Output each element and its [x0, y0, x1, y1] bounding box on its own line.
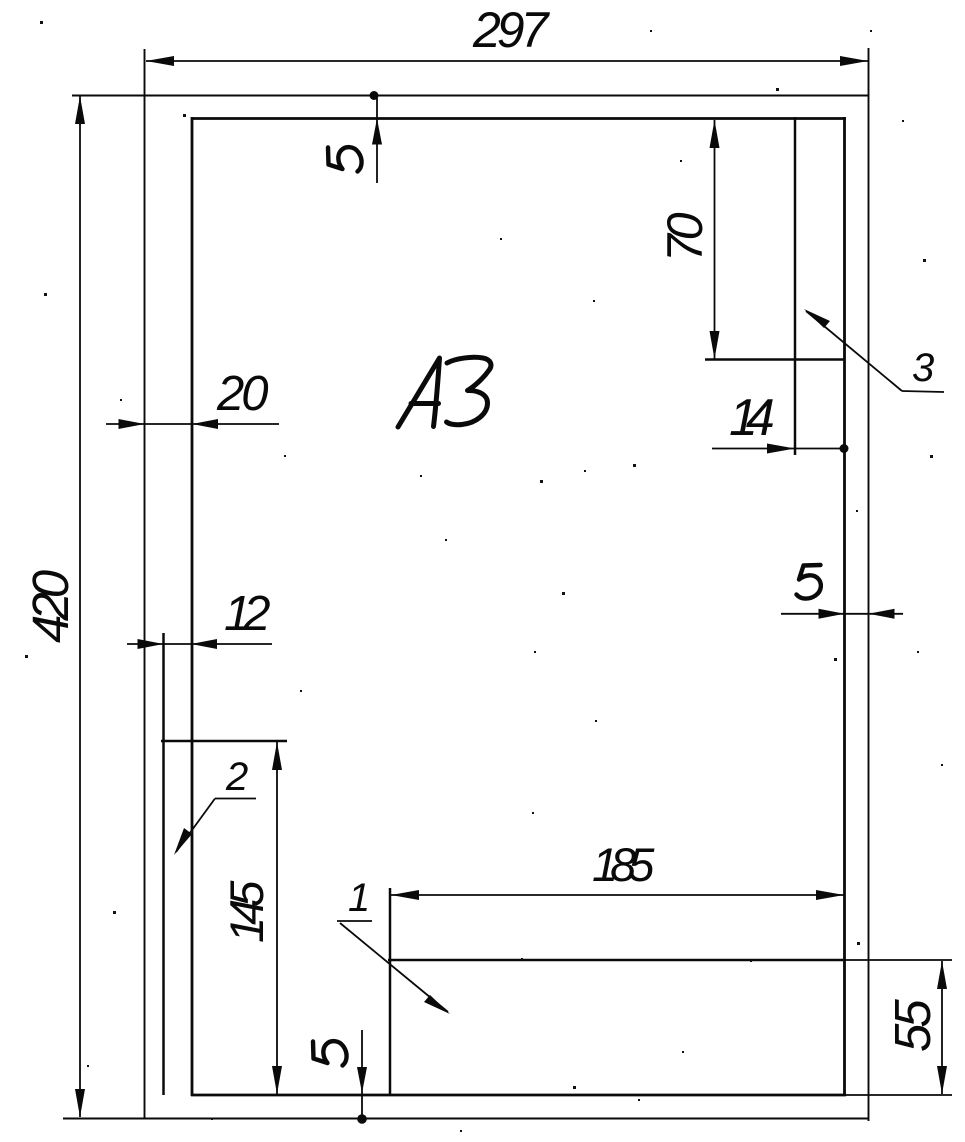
- svg-text:20: 20: [216, 367, 268, 421]
- svg-text:3: 3: [912, 346, 934, 390]
- svg-text:145: 145: [220, 880, 273, 943]
- svg-text:2: 2: [225, 755, 248, 799]
- svg-text:420: 420: [22, 570, 79, 643]
- svg-text:297: 297: [472, 2, 551, 58]
- svg-text:185: 185: [592, 838, 655, 891]
- svg-text:1: 1: [348, 876, 370, 920]
- svg-text:55: 55: [884, 999, 941, 1052]
- svg-text:70: 70: [657, 212, 713, 262]
